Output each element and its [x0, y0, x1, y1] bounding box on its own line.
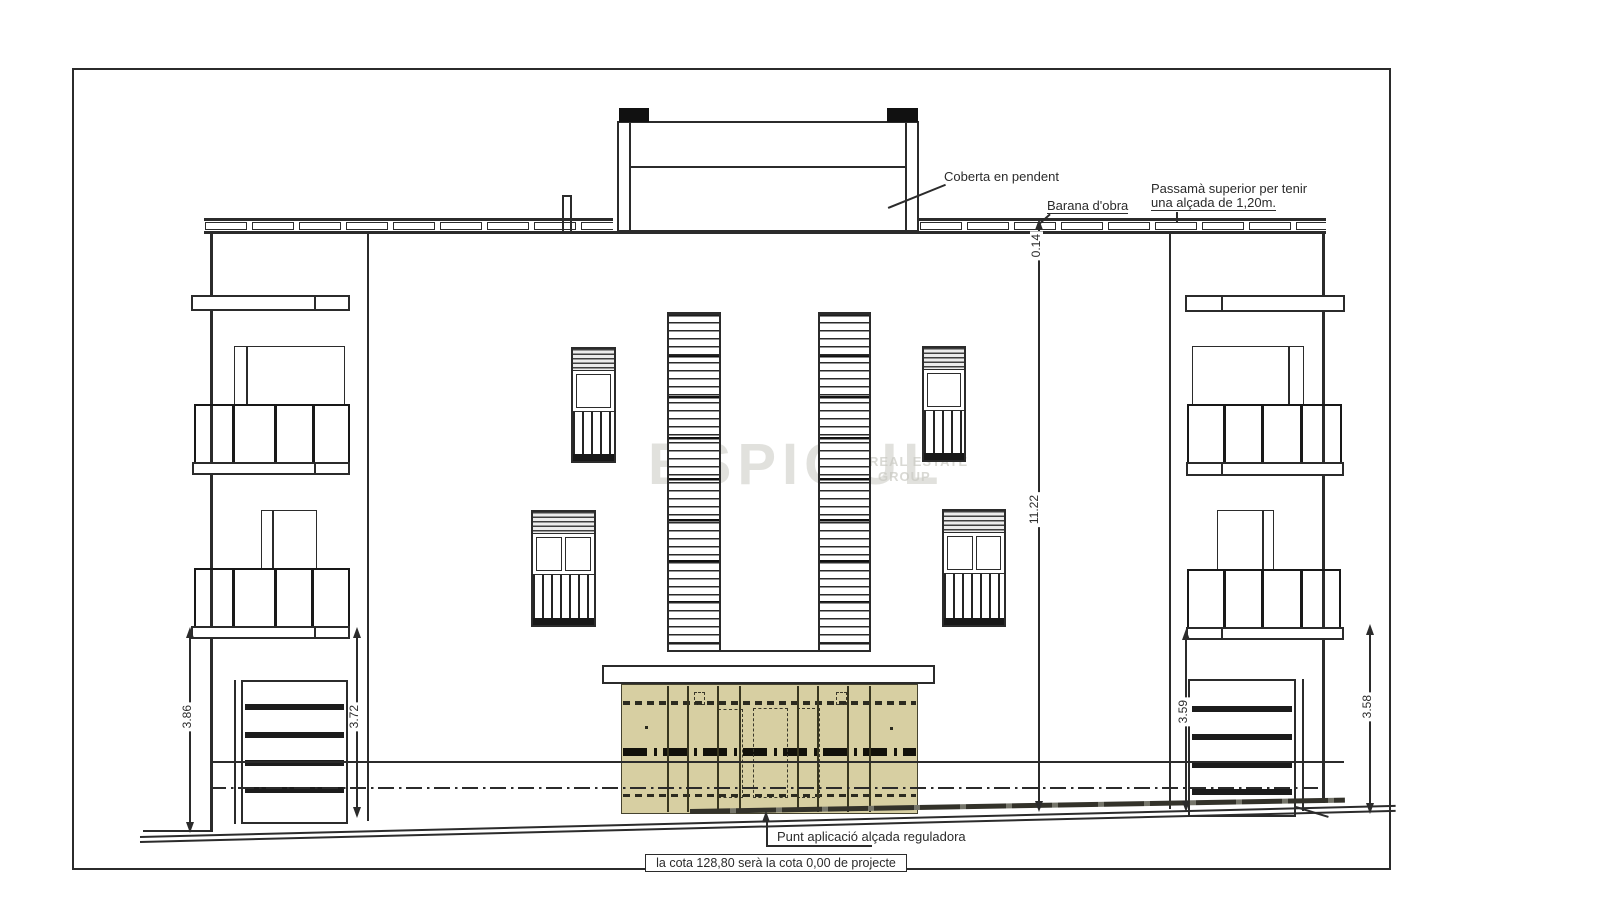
door-jamb-line	[272, 510, 274, 569]
dim-arrow-down	[1182, 801, 1190, 812]
window-glass	[533, 534, 594, 574]
penthouse-inner-wall-right	[905, 123, 907, 231]
parapet-railing-segment	[1061, 222, 1103, 230]
parapet-railing-segment	[920, 222, 962, 230]
dim-text-right-inner: 3.59	[1177, 697, 1190, 726]
label-punt: Punt aplicació alçada reguladora	[777, 830, 966, 843]
window-railing-bars	[924, 410, 964, 453]
parapet-railing-segment	[440, 222, 482, 230]
window-lower-left	[531, 510, 596, 627]
fence-vertical-line	[667, 686, 669, 812]
cota-reference-box: la cota 128,80 serà la cota 0,00 de proj…	[645, 854, 907, 872]
louver-sill-line	[667, 650, 871, 652]
balcony-railing	[194, 568, 350, 628]
dim-arrow-down	[1366, 803, 1374, 814]
glass-pane	[576, 374, 611, 408]
window-lower-right	[942, 509, 1006, 627]
parapet-railing-segment	[346, 222, 388, 230]
railing-post	[232, 570, 235, 626]
parapet-railing-segment	[252, 222, 294, 230]
door-jamb-line	[1262, 510, 1264, 570]
dim-arrow-up	[186, 627, 194, 638]
balcony-slab	[192, 462, 350, 475]
parapet-railing-segment	[581, 222, 613, 230]
facade-wall-right	[1322, 231, 1325, 803]
parapet-railing-segment	[1202, 222, 1244, 230]
window-glass	[573, 371, 614, 411]
roof-vent-right-line	[570, 196, 572, 232]
elevation-drawing-sheet: ESPIGUL REAL ESTATE GROUP	[0, 0, 1600, 921]
window-railing-bars	[573, 411, 614, 454]
facade-wall-left	[210, 231, 213, 832]
louver-strip-left	[667, 312, 721, 652]
parapet-railing-segment	[1108, 222, 1150, 230]
roller-shutter	[944, 511, 1004, 533]
glass-pane	[976, 536, 1002, 570]
penthouse-inner-wall-left	[629, 123, 631, 231]
garage-door-left	[241, 680, 348, 824]
fence-vertical-line	[869, 686, 871, 812]
dim-arrow-down	[353, 807, 361, 818]
glass-pane	[536, 537, 562, 571]
balcony-railing	[1187, 404, 1342, 464]
roof-handrail-right	[919, 218, 1326, 221]
dim-arrow-down	[1035, 801, 1043, 812]
label-barana: Barana d'obra	[1047, 199, 1128, 214]
fence-vent-mark	[836, 692, 847, 705]
window-railing-bars	[944, 573, 1004, 618]
railing-post	[274, 406, 277, 462]
window-upper-left	[571, 347, 616, 463]
slab-joint	[1221, 628, 1223, 639]
parapet-railing-segment	[487, 222, 529, 230]
dim-arrow-up	[1182, 629, 1190, 640]
railing-post	[1300, 571, 1303, 627]
railing-post	[1261, 406, 1264, 462]
glass-pane	[947, 536, 973, 570]
fence-vertical-line	[847, 686, 849, 812]
door-jamb-line	[246, 346, 248, 405]
railing-post	[312, 406, 315, 462]
balcony-door-opening	[1217, 510, 1274, 570]
window-upper-right	[922, 346, 966, 462]
leader-passama	[1176, 212, 1178, 222]
window-sill	[924, 453, 964, 460]
fence-cornice	[602, 665, 935, 684]
railing-post	[1223, 571, 1226, 627]
facade-divider-right	[1169, 231, 1171, 809]
fence-vertical-line	[817, 686, 819, 812]
slab-joint	[314, 296, 316, 310]
parapet-railing-segment	[1249, 222, 1291, 230]
glass-pane	[565, 537, 591, 571]
dim-text-left-inner: 3.72	[348, 702, 361, 731]
parapet-railing-segment	[299, 222, 341, 230]
garage-slat	[1192, 762, 1292, 768]
penthouse-chimney-right	[887, 108, 918, 122]
penthouse-chimney-left	[619, 108, 649, 122]
garage-slat	[1192, 734, 1292, 740]
fence-dot	[645, 726, 648, 729]
parapet-railing-segment	[1155, 222, 1197, 230]
leader-punt-vertical	[766, 819, 768, 845]
balcony-door-opening	[234, 346, 345, 405]
leader-punt-horizontal	[766, 845, 872, 847]
label-passama-line2: una alçada de 1,20m.	[1151, 196, 1276, 211]
roller-shutter	[924, 348, 964, 370]
fence-vertical-line	[797, 686, 799, 812]
penthouse-divider-line	[629, 166, 906, 168]
parapet-railing-segment	[393, 222, 435, 230]
parapet-railing-segment	[1296, 222, 1326, 230]
window-sill	[944, 618, 1004, 625]
garage-slat	[245, 704, 344, 710]
ground-stub-left	[143, 830, 213, 832]
roof-handrail-left	[204, 218, 613, 221]
balcony-slab	[1185, 295, 1345, 312]
roof-vent-left-line	[562, 196, 564, 232]
fence-vertical-line	[717, 686, 719, 812]
penthouse-body	[617, 121, 919, 232]
dim-text-parapet: 0.14	[1030, 231, 1043, 260]
window-sill	[573, 454, 614, 461]
slab-joint	[1221, 296, 1223, 311]
fence-vent-mark	[694, 692, 705, 705]
garage-jamb-line	[234, 680, 236, 824]
door-jamb-line	[1288, 346, 1290, 405]
dim-arrow-up	[353, 627, 361, 638]
window-glass	[924, 370, 964, 410]
glass-pane	[927, 373, 961, 407]
balcony-slab	[191, 626, 350, 639]
label-passama-line1: Passamà superior per tenir	[1151, 182, 1307, 195]
street-level-line	[212, 761, 1344, 763]
window-glass	[944, 533, 1004, 573]
facade-divider-left	[367, 231, 369, 821]
fence-panel	[621, 684, 918, 814]
fence-vertical-line	[687, 686, 689, 812]
railing-post	[311, 570, 314, 626]
louver-strip-right	[818, 312, 871, 652]
fence-gate	[753, 708, 788, 798]
dim-text-right-outer: 3.58	[1361, 692, 1374, 721]
slab-joint	[1221, 463, 1223, 475]
balcony-slab	[191, 295, 350, 311]
balcony-railing	[1187, 569, 1341, 629]
datum-dashdot-line	[210, 787, 1323, 789]
dim-arrow-down	[186, 822, 194, 833]
label-coberta: Coberta en pendent	[944, 170, 1059, 183]
roller-shutter	[573, 349, 614, 371]
roof-railing-left	[205, 222, 613, 231]
slab-joint	[314, 627, 316, 638]
garage-slat	[245, 732, 344, 738]
garage-door-right	[1188, 679, 1296, 817]
window-sill	[533, 618, 594, 625]
dim-arrow-up	[1366, 624, 1374, 635]
roof-railing-right	[920, 222, 1326, 231]
dim-text-left-outer: 3.86	[181, 702, 194, 731]
balcony-slab	[1186, 462, 1344, 476]
railing-post	[274, 570, 277, 626]
railing-post	[1223, 406, 1226, 462]
garage-slat	[1192, 706, 1292, 712]
slab-joint	[314, 463, 316, 474]
garage-jamb-line	[1302, 679, 1304, 811]
balcony-slab	[1186, 627, 1344, 640]
fence-dot	[890, 727, 893, 730]
railing-post	[1300, 406, 1303, 462]
dim-text-total-height: 11.22	[1028, 492, 1041, 527]
garage-slat	[1192, 789, 1292, 795]
watermark-sub2: GROUP	[878, 470, 931, 484]
window-railing-bars	[533, 574, 594, 618]
railing-post	[1261, 571, 1264, 627]
railing-post	[232, 406, 235, 462]
parapet-railing-segment	[205, 222, 247, 230]
balcony-door-opening	[261, 510, 317, 569]
parapet-railing-segment	[967, 222, 1009, 230]
balcony-railing	[194, 404, 350, 464]
fence-vertical-line	[739, 686, 741, 812]
roller-shutter	[533, 512, 594, 534]
